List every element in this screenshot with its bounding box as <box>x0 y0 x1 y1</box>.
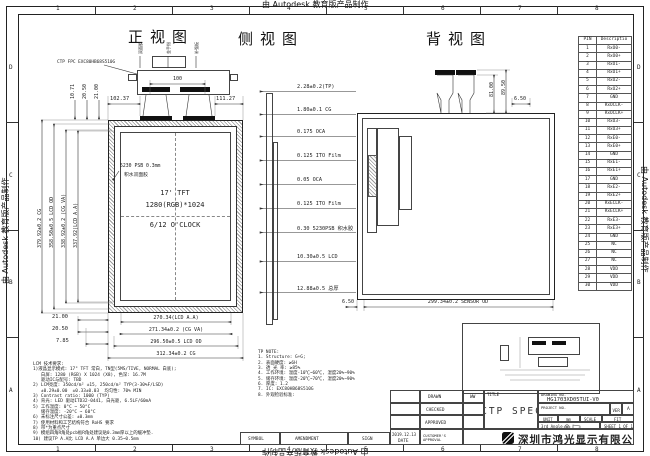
dimension-linework <box>0 0 650 456</box>
drawing-sheet: 由 Autodesk 教育版产品制作 由 Autodesk 教育版产品制作 由 … <box>0 0 650 456</box>
